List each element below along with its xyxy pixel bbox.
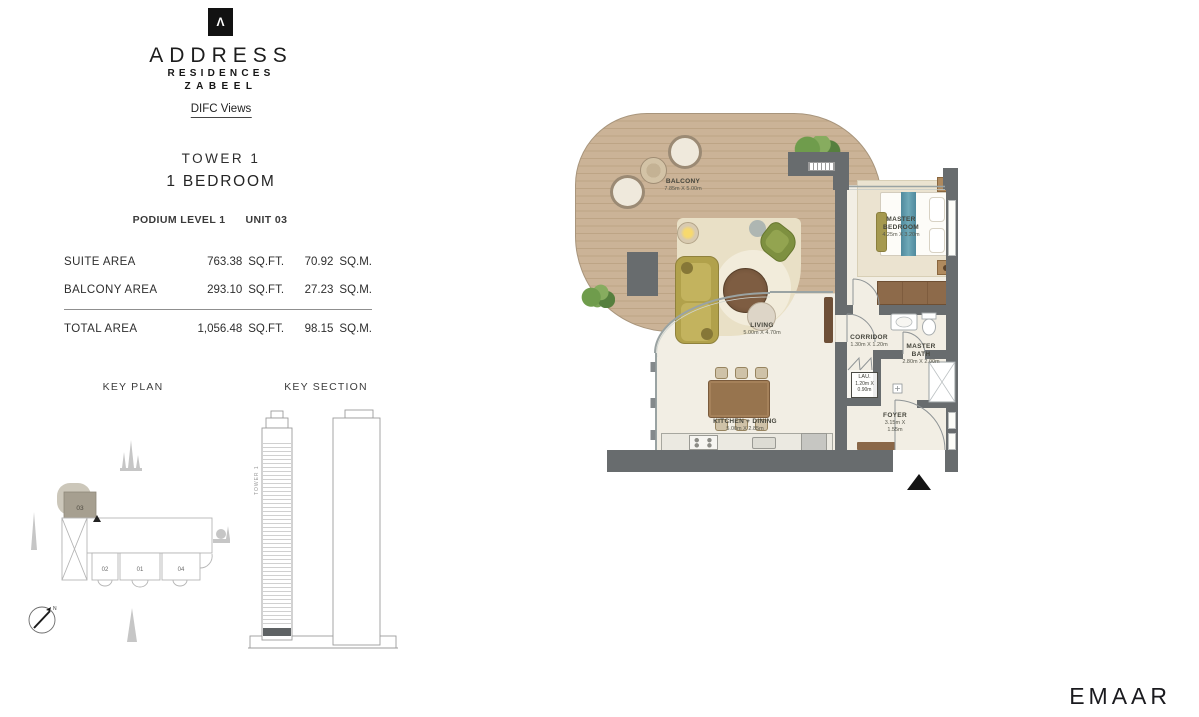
plan-linework	[565, 100, 965, 500]
room-label-laundry: LAU. 1.20m X 0.90m	[851, 372, 878, 398]
bedrooms-title: 1 BEDROOM	[166, 173, 275, 191]
area-row-label: TOTAL AREA	[64, 323, 183, 335]
tower2-section	[333, 410, 380, 645]
unit-number-label: UNIT 03	[246, 214, 288, 226]
bedroom-door-arc	[853, 279, 879, 305]
key-plan-unit04-label: 04	[178, 567, 185, 573]
table-row: BALCONY AREA 293.10 SQ.FT. 27.23 SQ.M.	[64, 284, 372, 296]
tower-title: TOWER 1	[182, 151, 261, 166]
level-label: PODIUM LEVEL 1	[133, 214, 226, 226]
area-sqm-value: 70.92	[294, 256, 334, 268]
area-sqm-value: 98.15	[294, 323, 334, 335]
landmark-eiffel-icon	[127, 608, 137, 642]
key-section-title: KEY SECTION	[284, 381, 368, 393]
toilet	[923, 319, 936, 335]
key-plan-unit02-label: 02	[102, 567, 109, 573]
area-sqm-unit: SQ.M.	[333, 256, 372, 268]
key-plan-title: KEY PLAN	[103, 381, 164, 393]
developer-logo: EMAAR	[1069, 683, 1171, 710]
landmark-tower-icon	[122, 440, 140, 468]
area-sqm-value: 27.23	[294, 284, 334, 296]
floor-plan: BALCONY 7.85m X 5.00m LIVING 5.00m X 4.7…	[565, 100, 965, 500]
laundry-double-doors	[848, 358, 872, 370]
area-table: SUITE AREA 763.38 SQ.FT. 70.92 SQ.M. BAL…	[64, 256, 372, 351]
room-label-kitchen-dining: KITCHEN + DINING 5.00m X 2.85m	[713, 418, 777, 433]
floorplan-brochure-page: Λ ADDRESS RESIDENCES ZABEEL DIFC Views T…	[0, 0, 1199, 717]
address-logo-icon: Λ	[208, 8, 233, 36]
tower1-section-label: TOWER 1	[254, 465, 260, 495]
brand-name: ADDRESS	[149, 44, 293, 68]
tower1-highlighted-level	[263, 628, 291, 636]
room-label-master-bedroom: MASTER BEDROOM 4.25m X 3.20m	[878, 216, 924, 239]
area-sqft-value: 1,056.48	[183, 323, 242, 335]
room-label-corridor: CORRIDOR 1.30m X 1.20m	[850, 334, 888, 349]
address-logo-glyph: Λ	[216, 15, 224, 29]
area-sqm-unit: SQ.M.	[333, 284, 372, 296]
area-sqft-unit: SQ.FT.	[242, 256, 294, 268]
room-label-living: LIVING 5.00m X 4.70m	[743, 322, 780, 337]
area-row-label: SUITE AREA	[64, 256, 183, 268]
area-sqft-value: 763.38	[183, 256, 242, 268]
compass-north-label: N	[53, 606, 57, 612]
area-sqft-unit: SQ.FT.	[242, 323, 294, 335]
brand-subname: RESIDENCES	[167, 68, 274, 79]
level-unit-row: PODIUM LEVEL 1 UNIT 03	[133, 214, 288, 226]
table-row: TOTAL AREA 1,056.48 SQ.FT. 98.15 SQ.M.	[64, 323, 372, 335]
table-divider	[64, 309, 372, 310]
entrance-arrow-icon	[907, 474, 931, 490]
view-tag-link[interactable]: DIFC Views	[191, 103, 252, 118]
area-row-label: BALCONY AREA	[64, 284, 183, 296]
key-plan-footprint	[62, 518, 212, 587]
landmark-spire-icon	[31, 512, 37, 550]
room-label-foyer: FOYER 3.15m X 1.55m	[878, 412, 912, 434]
compass-icon: N	[29, 606, 57, 633]
area-sqft-unit: SQ.FT.	[242, 284, 294, 296]
area-sqm-unit: SQ.M.	[333, 323, 372, 335]
key-plan-unit01-label: 01	[137, 567, 144, 573]
key-section-drawing: TOWER 1	[248, 400, 398, 660]
area-sqft-value: 293.10	[183, 284, 242, 296]
room-label-balcony: BALCONY 7.85m X 5.00m	[664, 178, 701, 193]
key-plan-drawing: 03 02 01 04	[25, 398, 240, 653]
key-plan-unit03-label: 03	[76, 505, 84, 512]
table-row: SUITE AREA 763.38 SQ.FT. 70.92 SQ.M.	[64, 256, 372, 268]
tower1-floor-lines	[263, 440, 291, 626]
room-label-master-bath: MASTER BATH 2.80m X 2.00m	[899, 343, 943, 366]
brand-location: ZABEEL	[185, 81, 258, 92]
landmark-dome-icon	[216, 529, 226, 539]
